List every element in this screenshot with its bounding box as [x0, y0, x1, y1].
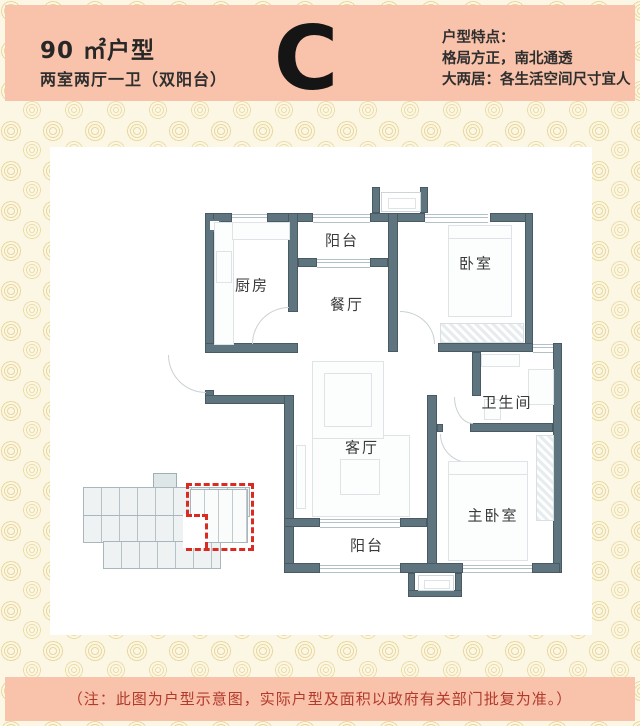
wall: [284, 518, 320, 527]
wall: [388, 213, 398, 352]
unit-area-title: 90 ㎡户型: [40, 31, 155, 65]
furniture-kitchen-counter: [214, 222, 234, 345]
window: [463, 565, 532, 573]
furniture-kitchen-counter: [232, 222, 290, 240]
wall: [372, 187, 380, 213]
wall: [298, 258, 317, 267]
window: [313, 214, 370, 223]
features-line2: 大两居：各生活空间尺寸宜人: [442, 70, 631, 91]
wall: [205, 395, 294, 404]
wall: [370, 258, 388, 267]
room-label-kitchen: 厨房: [235, 275, 269, 296]
furniture-vanity: [481, 354, 520, 367]
page: 90 ㎡户型 两室两厅一卫（双阳台） C 户型特点： 格局方正，南北通透 大两居…: [0, 0, 640, 726]
furniture-pillow: [448, 461, 528, 475]
wall: [420, 187, 428, 213]
furniture-pillow: [448, 225, 512, 239]
furniture-coffee-table: [340, 459, 380, 495]
elevator-icon: [418, 575, 454, 591]
unit-features: 户型特点： 格局方正，南北通透 大两居：各生活空间尺寸宜人: [442, 28, 631, 91]
wall: [284, 395, 294, 573]
wall: [438, 343, 533, 352]
wall: [470, 423, 553, 432]
wall: [532, 563, 560, 573]
wall: [553, 343, 562, 573]
furniture-kitchen-sink: [216, 251, 232, 283]
window: [317, 259, 370, 268]
furniture-wardrobe: [536, 435, 554, 521]
window: [320, 565, 400, 573]
entry-door-arc: [168, 355, 206, 393]
door-arc: [252, 307, 289, 344]
room-label-living: 客厅: [345, 437, 379, 458]
room-label-master-bedroom: 主卧室: [467, 505, 518, 526]
furniture-tv-bench: [296, 445, 306, 509]
wall: [284, 563, 320, 573]
features-title: 户型特点：: [442, 28, 631, 49]
wall: [472, 352, 481, 396]
header-band: 90 ㎡户型 两室两厅一卫（双阳台） C 户型特点： 格局方正，南北通透 大两居…: [5, 5, 635, 101]
furniture-wardrobe: [440, 323, 524, 343]
features-line1: 格局方正，南北通透: [442, 49, 631, 70]
room-label-bedroom: 卧室: [459, 253, 493, 274]
wall: [408, 590, 462, 597]
furniture-dining-table: [324, 373, 372, 427]
room-label-dining: 餐厅: [330, 294, 364, 315]
room-label-north-balcony: 阳台: [325, 230, 359, 251]
door-arc: [440, 434, 469, 463]
wall: [400, 518, 427, 527]
wall: [205, 213, 214, 353]
disclaimer-note: （注：此图为户型示意图，实际户型及面积以政府有关部门批复为准。）: [5, 677, 635, 721]
wall: [427, 395, 437, 573]
door-arc: [400, 311, 435, 344]
wall: [400, 563, 463, 573]
window: [320, 519, 400, 528]
elevator-icon: [381, 192, 421, 212]
window: [533, 344, 553, 353]
door-arc: [454, 397, 473, 424]
room-label-bathroom: 卫生间: [481, 392, 532, 413]
unit-type-letter: C: [271, 7, 341, 110]
window: [425, 214, 488, 223]
floorplan-canvas: 阳台 厨房 餐厅 卧室 卫生间 客厅 主卧室 阳台: [50, 147, 592, 635]
unit-layout-subtitle: 两室两厅一卫（双阳台）: [40, 66, 227, 90]
keyplan-highlight-step: [186, 514, 208, 548]
room-label-south-balcony: 阳台: [350, 535, 384, 556]
wall: [437, 424, 443, 432]
wall: [525, 213, 533, 352]
